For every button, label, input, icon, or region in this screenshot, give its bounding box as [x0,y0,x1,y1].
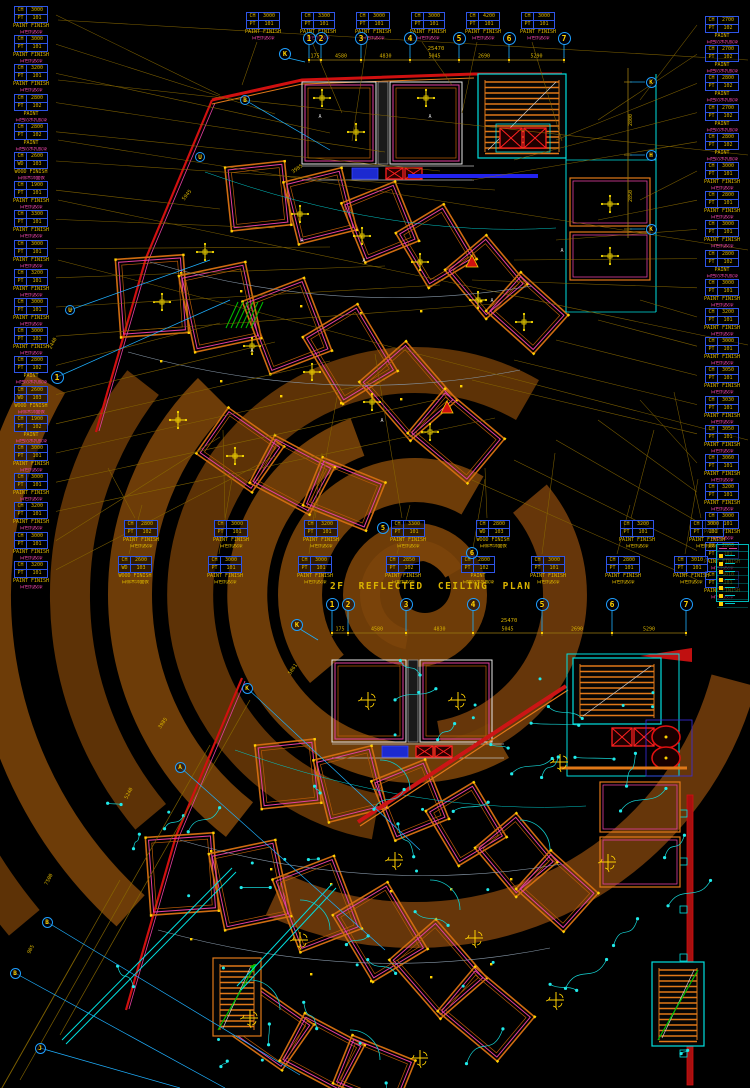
ceiling-diffuser-symbol [601,195,619,213]
svg-text:25470: 25470 [501,618,518,624]
room [424,781,508,868]
svg-text:175: 175 [310,54,319,60]
svg-text:25470: 25470 [428,46,445,52]
ceiling-diffuser-symbol [515,313,533,331]
svg-text:5045: 5045 [428,54,440,60]
svg-text:A: A [490,298,493,304]
svg-text:5945: 5945 [181,189,193,202]
ceiling-diffuser-symbol [291,205,309,223]
svg-text:A: A [560,248,563,254]
room [278,1011,367,1088]
ceiling-diffuser-symbol [313,89,331,107]
ceiling-fan-symbol [546,992,564,1010]
ceiling-diffuser-symbol [347,123,365,141]
room [394,203,478,290]
svg-text:A: A [428,114,431,120]
ceiling-diffuser-symbol [411,253,429,271]
svg-text:A: A [362,258,365,264]
room [224,160,293,233]
svg-text:A: A [318,114,321,120]
ceiling-diffuser-symbol [417,89,435,107]
svg-text:5290: 5290 [530,54,542,60]
svg-text:5290: 5290 [643,627,655,633]
drawing-canvas: AAAAAAAA17545804830504526905290254701754… [0,0,750,1088]
ceiling-diffuser-symbol [153,293,171,311]
room [340,180,421,264]
svg-text:2690: 2690 [478,54,490,60]
ceiling-fan-symbol [448,692,466,710]
svg-text:A: A [250,348,253,354]
svg-text:4830: 4830 [433,627,445,633]
svg-text:A: A [300,238,303,244]
ceiling-fan-symbol [385,852,403,870]
svg-text:175: 175 [335,627,344,633]
ceiling-diffuser-symbol [196,243,214,261]
svg-text:5045: 5045 [501,627,513,633]
svg-text:2850: 2850 [628,190,634,202]
svg-text:3985: 3985 [291,163,304,175]
svg-text:7500: 7500 [44,873,55,886]
svg-text:4830: 4830 [379,54,391,60]
svg-text:4580: 4580 [371,627,383,633]
svg-text:2800: 2800 [628,114,634,126]
svg-text:2440: 2440 [48,337,59,350]
ceiling-fan-symbol [358,692,376,710]
dimension-row: 1754580483050452690529025470 [308,46,565,63]
room [436,965,536,1063]
svg-text:2690: 2690 [571,627,583,633]
watermark-logo [0,370,734,925]
plan-lower [126,660,600,1088]
svg-text:905: 905 [26,944,36,955]
ceiling-diffuser-symbol [601,247,619,265]
cad-sheet: AAAAAAAA17545804830504526905290254701754… [0,0,750,1088]
svg-text:A: A [380,418,383,424]
svg-text:4580: 4580 [335,54,347,60]
